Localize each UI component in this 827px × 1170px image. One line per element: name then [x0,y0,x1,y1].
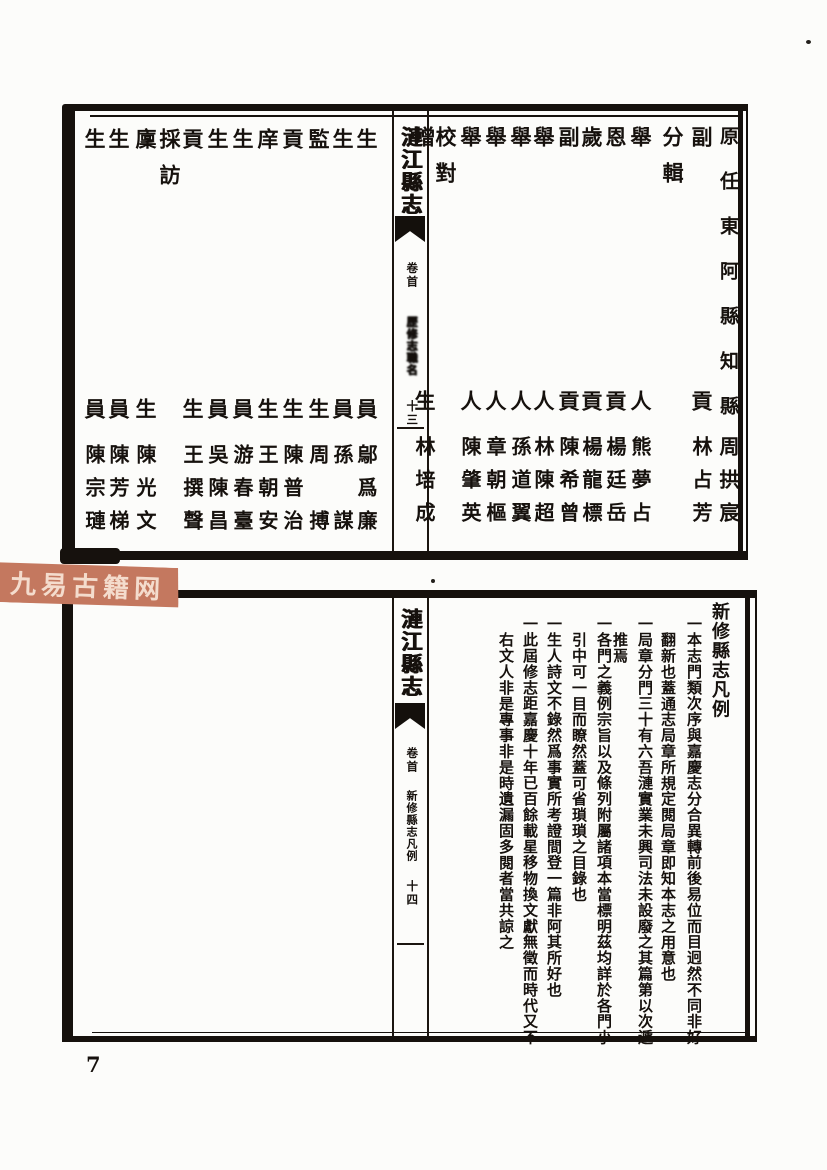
person-column: 副貢林占芳 [688,104,712,560]
person-column: 歲貢楊龍標 [578,104,602,560]
scan-speck [806,40,811,44]
person-column: 監生周 搏 [305,104,329,560]
person-column: 生員孫 謀 [329,104,353,560]
role-label: 生 [307,398,328,421]
role-label: 歲 [580,126,601,149]
person-column: 生員吳陳昌 [204,104,228,560]
frame-border-right-inner [745,590,750,1042]
fanli-column: 一此屆修志距嘉慶十年已百餘載星移物換文獻無徵而時代又不 [521,616,536,1045]
role-label: 員 [206,398,227,421]
person-column: 副貢陳希曾 [555,104,579,560]
person-name: 林培成 [413,436,433,535]
role-label: 人 [629,390,650,413]
bottom-frame: 漣江縣志 卷首 新修縣志凡例 十四 新修縣志凡例 一本志門類次序與嘉慶志分合異轉… [62,590,757,1042]
person-column: 校對 [432,104,456,560]
watermark-text: 九易古籍网 [9,564,165,607]
scanned-book-page: 漣江縣志 卷首 歷修志職名 十三 原任東阿縣知縣周拱宸副貢林占芳分輯舉人熊夢占恩… [0,0,827,1170]
role-label: 副 [557,126,578,149]
role-label: 生 [134,398,155,421]
role-label: 生 [181,398,202,421]
role-label: 員 [231,398,252,421]
person-name: 孫 謀 [331,444,351,543]
fanli-column: 一局章分門三十有六吾漣實業未興司法未設廢之其篇第以次遞 [636,616,651,1045]
spine-book-title: 漣江縣志 [400,608,421,698]
frame-border-left [62,104,75,560]
spine-subsection-label: 新修縣志凡例 [405,790,416,862]
person-column: 原任東阿縣知縣周拱宸 [715,104,739,560]
role-label: 廩 [134,128,155,151]
frame-border-left [62,597,73,1042]
frame-border-top [166,590,757,598]
role-label: 生 [83,128,104,151]
role-label: 生 [413,390,434,413]
person-name: 王撰聲 [181,444,201,543]
fanli-column: 推焉 [611,632,626,664]
person-column: 舉人熊夢占 [627,104,651,560]
role-label: 人 [509,390,530,413]
person-column: 生員鄔爲廉 [353,104,377,560]
role-label: 人 [459,390,480,413]
role-label: 生 [206,128,227,151]
role-label: 貢 [281,128,302,151]
person-column: 廩生陳光文 [132,104,156,560]
person-column: 恩貢楊廷岳 [602,104,626,560]
person-column: 增生林培成 [411,104,435,560]
role-label: 增 [413,126,434,149]
role-label: 人 [532,390,553,413]
frame-border-bottom [62,1036,757,1042]
person-name: 陳希曾 [557,436,577,535]
role-label: 貢 [604,390,625,413]
person-column: 舉人章朝樞 [482,104,506,560]
person-name: 周 搏 [307,444,327,543]
person-name: 吳陳昌 [206,444,226,543]
role-label: 原任東阿縣知縣 [718,126,737,441]
person-name: 陳芳梯 [107,444,127,543]
person-name: 章朝樞 [484,436,504,535]
role-label: 恩 [604,126,625,149]
printed-page-number: 7 [86,1052,101,1077]
person-name: 陳普治 [281,444,301,543]
role-label: 舉 [509,126,530,149]
person-name: 周拱宸 [717,436,737,535]
fanli-column: 一各門之義例宗旨以及條列附屬諸項本當標明茲均詳於各門小 [595,616,610,1045]
scan-speck [431,579,435,583]
person-name: 孫道翼 [509,436,529,535]
role-label: 員 [83,398,104,421]
top-frame: 漣江縣志 卷首 歷修志職名 十三 原任東阿縣知縣周拱宸副貢林占芳分輯舉人熊夢占恩… [62,104,748,560]
fanli-column: 引中可一目而瞭然蓋可省瑣瑣之目錄也 [570,632,585,902]
person-name: 林陳超 [532,436,552,535]
role-label: 舉 [484,126,505,149]
role-label: 員 [107,398,128,421]
person-name: 陳光文 [134,444,154,543]
role-label: 庠 [256,128,277,151]
bottom-spine: 漣江縣志 卷首 新修縣志凡例 十四 [392,598,429,1036]
fanli-title: 新修縣志凡例 [711,602,729,719]
person-column: 生員陳芳梯 [105,104,129,560]
person-column: 舉人孫道翼 [507,104,531,560]
role-label: 員 [355,398,376,421]
person-name: 熊夢占 [629,436,649,535]
role-label: 舉 [532,126,553,149]
person-name: 鄔爲廉 [355,444,375,543]
person-column: 舉人林陳超 [530,104,554,560]
person-name: 游春臺 [231,444,251,543]
role-label: 貢 [181,128,202,151]
frame-border-right-outer [746,104,748,560]
spine-rule [397,943,424,945]
role-label: 貢 [580,390,601,413]
person-column: 分輯 [659,104,683,560]
person-name: 楊廷岳 [604,436,624,535]
person-name: 陳宗璉 [83,444,103,543]
role-label: 生 [281,398,302,421]
role-label: 副 [690,126,711,149]
fanli-column: 右文人非是專事非是時遺漏固多閱者當共諒之 [497,632,512,950]
person-name: 陳肇英 [459,436,479,535]
person-column: 採訪 [156,104,180,560]
role-label: 貢 [557,390,578,413]
role-label: 生 [355,128,376,151]
role-label: 生 [231,128,252,151]
role-label: 生 [331,128,352,151]
fanli-column: 翻新也蓋通志局章所規定閱局章即知本志之用意也 [659,632,674,982]
role-label: 採訪 [158,128,179,200]
role-label: 校對 [434,126,455,198]
fishtail-mark [395,703,425,729]
spine-section-label: 卷首 [405,747,417,774]
role-label: 貢 [690,390,711,413]
person-column: 庠生王朝安 [254,104,278,560]
person-column: 生員游春臺 [229,104,253,560]
spine-page-number: 十四 [405,880,417,907]
fanli-column: 一本志門類次序與嘉慶志分合異轉前後易位而目迥然不同非好 [685,616,700,1045]
watermark-banner: 九易古籍网 [0,561,180,609]
role-label: 生 [107,128,128,151]
person-column: 生員陳宗璉 [81,104,105,560]
frame-border-right-outer [755,590,757,1042]
role-label: 舉 [629,126,650,149]
role-label: 人 [484,390,505,413]
role-label: 分輯 [661,126,682,198]
role-label: 員 [331,398,352,421]
role-label: 舉 [459,126,480,149]
person-name: 林占芳 [690,436,710,535]
person-column: 貢生陳普治 [279,104,303,560]
person-column: 貢生王撰聲 [179,104,203,560]
role-label: 監 [307,128,328,151]
fanli-column: 一生人詩文不錄然爲事實所考證間登一篇非阿其所好也 [545,616,560,998]
person-name: 王朝安 [256,444,276,543]
person-column: 舉人陳肇英 [457,104,481,560]
role-label: 生 [256,398,277,421]
person-name: 楊龍標 [580,436,600,535]
